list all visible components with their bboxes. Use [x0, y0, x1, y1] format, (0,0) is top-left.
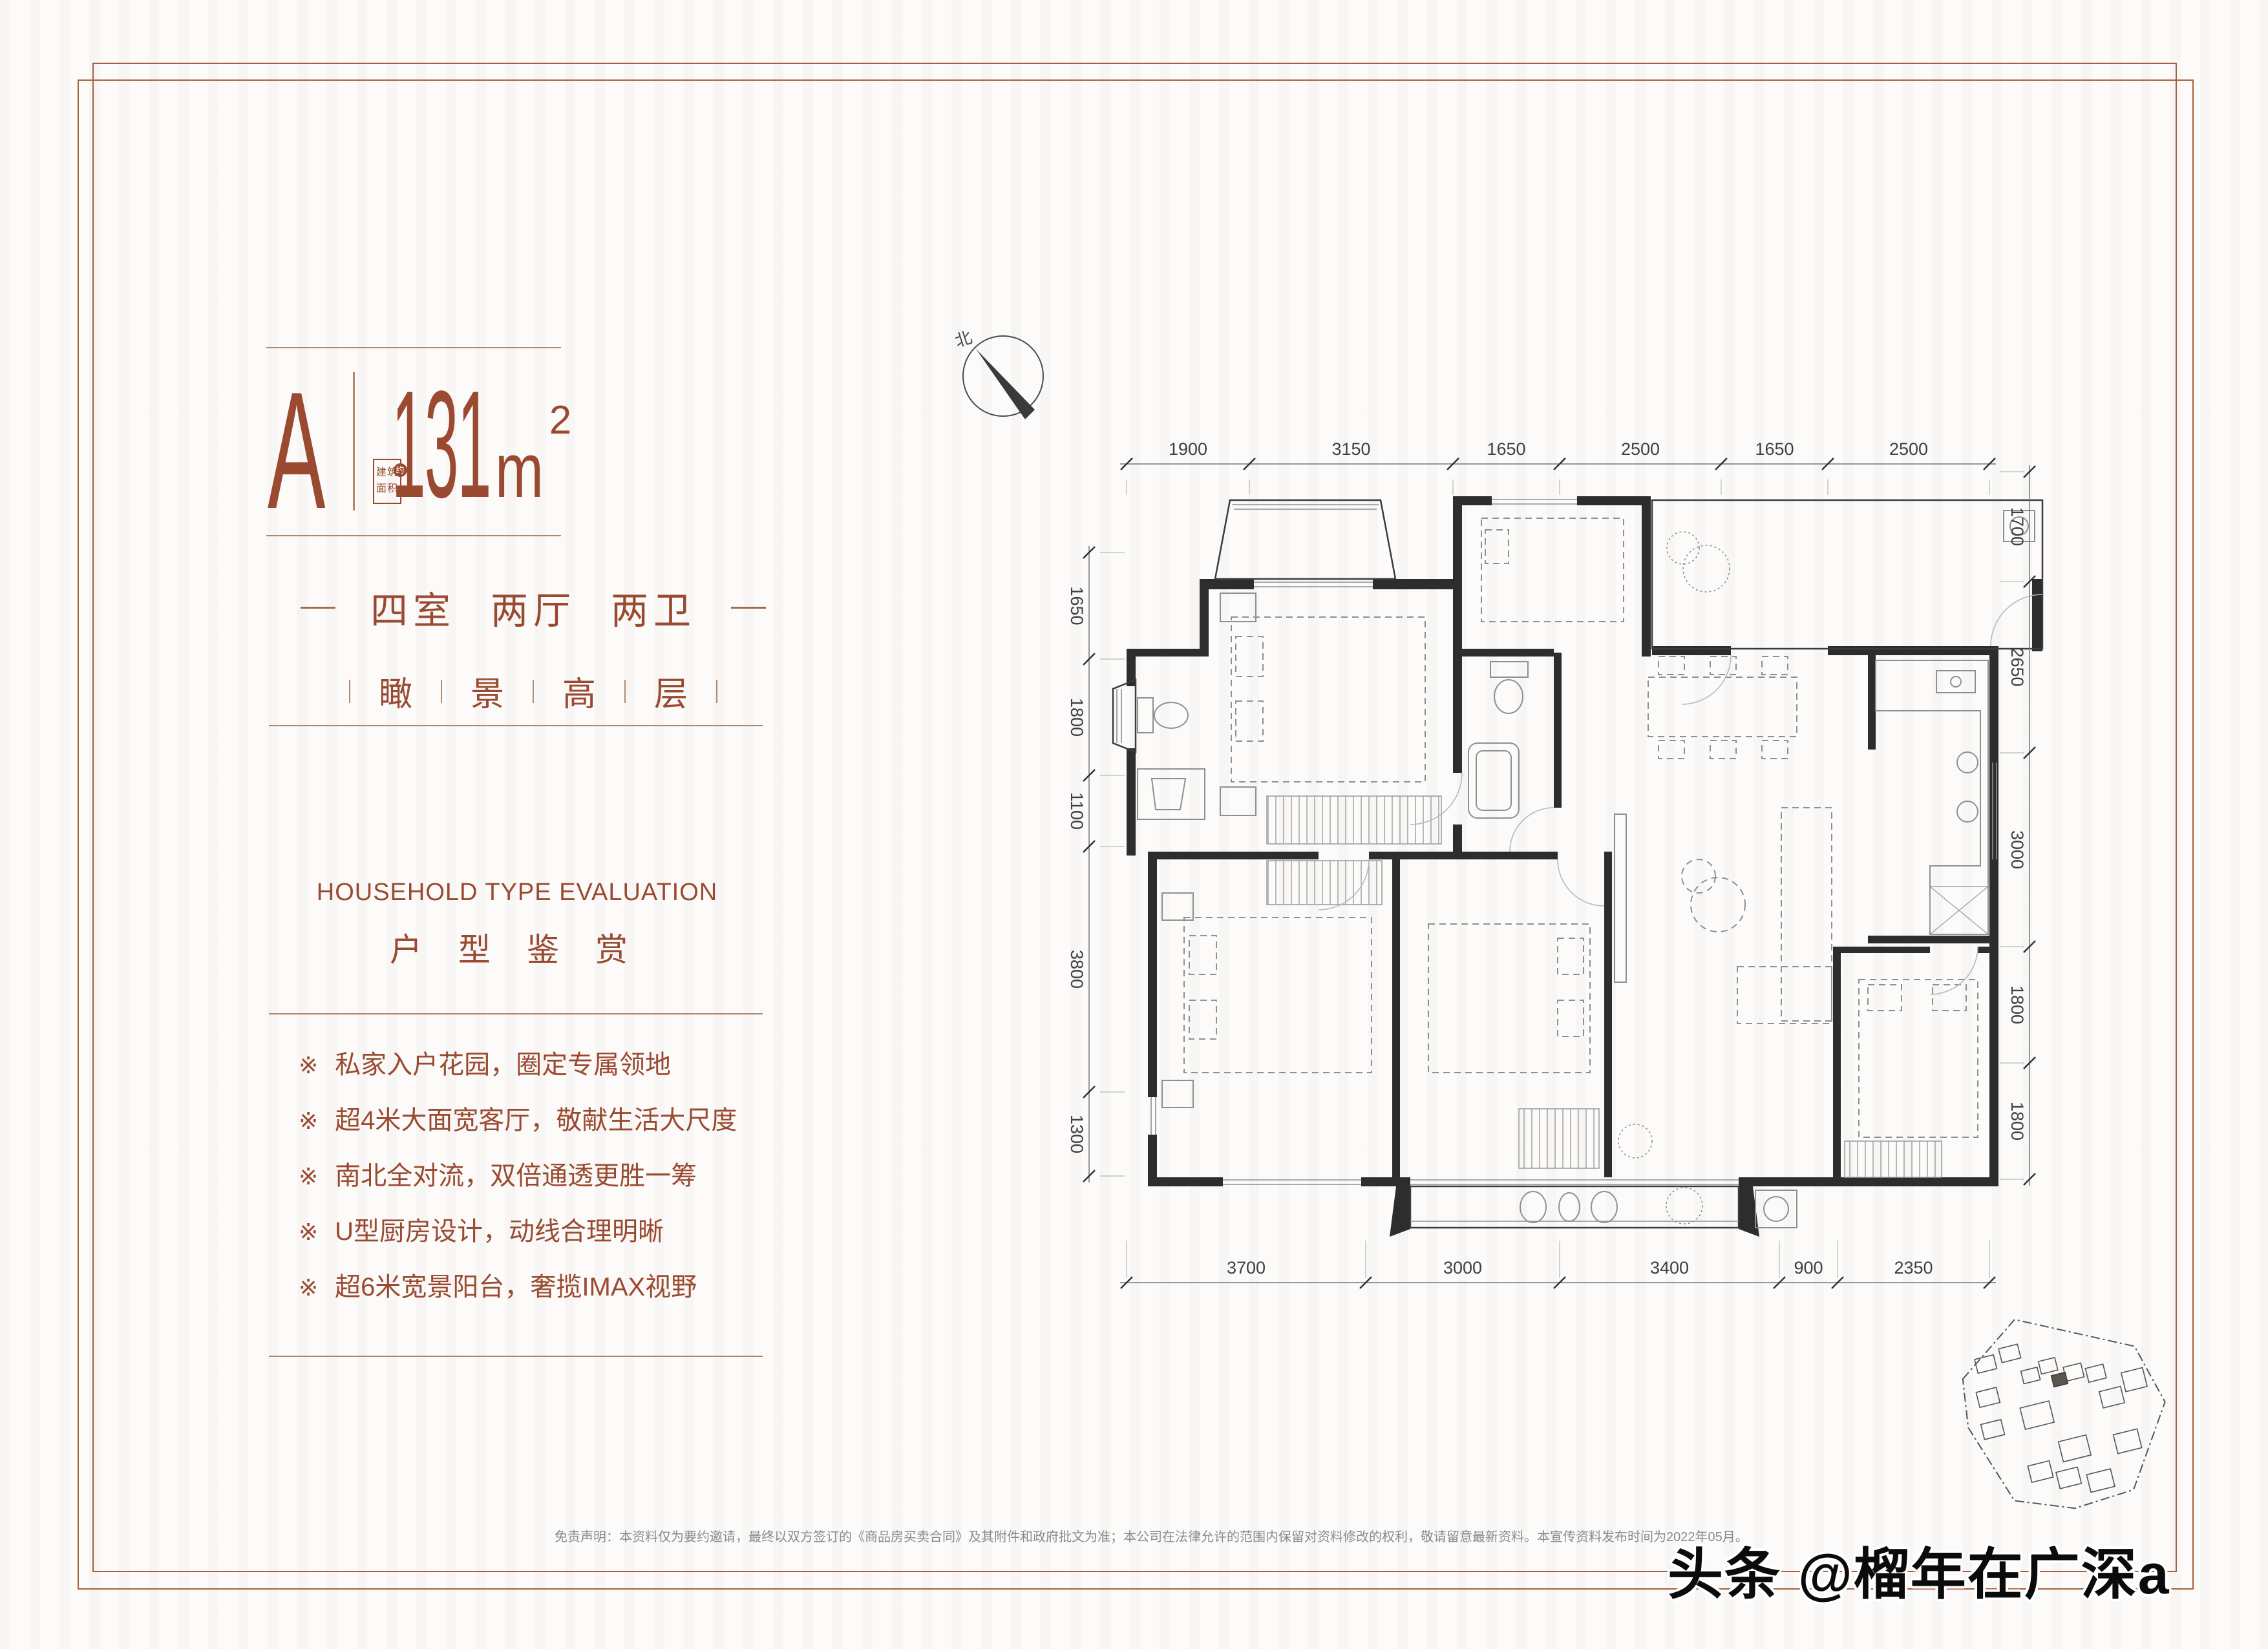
dash-right	[731, 607, 766, 609]
disclaimer-text: 免责声明：本资料仅为要约邀请，最终以双方签订的《商品房买卖合同》及其附件和政府批…	[555, 1526, 1748, 1545]
unit-letter: A	[268, 367, 325, 534]
hairline-under-features	[269, 725, 763, 726]
bullet-text: 南北全对流，双倍通透更胜一筹	[335, 1163, 697, 1189]
hairline-bottom	[269, 1356, 763, 1357]
dimension-label: 1900	[1169, 439, 1207, 459]
feature-separator	[716, 680, 717, 703]
bullet-marker: ※	[299, 1274, 318, 1300]
bullet-marker: ※	[299, 1163, 318, 1189]
dimension-chain-left: 16501800110038001300	[1067, 546, 1125, 1182]
feature-char: 高	[562, 667, 596, 715]
site-boundary	[1953, 1291, 2173, 1524]
dimension-label: 3150	[1331, 439, 1370, 459]
floor-plan: 北	[892, 304, 2146, 1325]
hairline-under-badge	[266, 535, 561, 536]
rooms-headline: 四室 两厅 两卫	[294, 580, 772, 635]
feature-char: 层	[654, 667, 688, 715]
feature-separator	[441, 680, 442, 703]
bullet-marker: ※	[299, 1052, 318, 1078]
dimension-label: 1650	[1067, 586, 1086, 625]
dimension-label: 3800	[1067, 950, 1086, 989]
dash-left	[301, 607, 335, 609]
dimension-label: 1300	[1067, 1115, 1086, 1153]
dimension-label: 1650	[1487, 439, 1525, 459]
feature-bullet-list: ※私家入户花园，圈定专属领地 ※超4米大面宽客厅，敬献生活大尺度 ※南北全对流，…	[299, 1052, 790, 1330]
feature-char: 瞰	[379, 667, 412, 715]
dining-furniture	[1648, 656, 1797, 759]
bullet-item: ※U型厨房设计，动线合理明晰	[299, 1219, 790, 1245]
plan-windows	[1117, 499, 1997, 1184]
dimension-label: 2500	[1621, 439, 1660, 459]
bullet-text: U型厨房设计，动线合理明晰	[335, 1219, 664, 1245]
rooms-item: 四室	[370, 580, 456, 635]
bullet-item: ※南北全对流，双倍通透更胜一筹	[299, 1163, 790, 1189]
rooms-item: 两厅	[491, 580, 576, 635]
watermark-text: 头条 @榴年在广深a	[1668, 1529, 2170, 1610]
area-value: 131	[392, 383, 491, 508]
site-buildings	[1964, 1316, 2169, 1514]
area-unit: m	[495, 436, 544, 505]
unit-divider	[353, 372, 355, 510]
bathroom-middle-fixtures	[1468, 662, 1528, 818]
dimension-label: 1800	[2008, 985, 2027, 1024]
entry-garden	[1667, 510, 2042, 646]
compass-icon: 北	[953, 327, 1043, 419]
bedroom-b-furniture	[1481, 518, 1624, 622]
bedroom-e-furniture	[1845, 980, 1978, 1177]
poster-page: { "accent_color": "#9a4a30", "frame_colo…	[0, 0, 2268, 1649]
bullet-text: 私家入户花园，圈定专属领地	[335, 1052, 671, 1078]
rooms-item: 两卫	[611, 580, 696, 635]
features-headline: 瞰 景 高 层	[294, 667, 772, 715]
bedroom-a-furniture	[1220, 593, 1441, 844]
dimension-chain-bottom: 3700300034009002350	[1120, 1241, 1996, 1288]
area-exponent: 2	[549, 397, 571, 443]
dimension-label: 3400	[1650, 1258, 1689, 1277]
dimension-label: 1650	[1755, 439, 1794, 459]
compass-north-label: 北	[953, 327, 975, 351]
bedroom-c-furniture	[1162, 861, 1382, 1108]
dimension-label: 2500	[1889, 439, 1928, 459]
hairline-under-title	[269, 1013, 763, 1014]
dimension-label: 3000	[1443, 1258, 1482, 1277]
dimension-label: 1800	[2008, 1102, 2027, 1140]
section-title-cn: 户型鉴赏	[271, 924, 763, 971]
bullet-item: ※超4米大面宽客厅，敬献生活大尺度	[299, 1108, 790, 1133]
bathroom-left-fixtures	[1138, 698, 1205, 819]
dimension-label: 2350	[1894, 1258, 1933, 1277]
dimension-label: 3700	[1227, 1258, 1266, 1277]
site-map	[1953, 1291, 2173, 1524]
feature-separator	[624, 680, 626, 703]
dimension-label: 2650	[2008, 647, 2027, 686]
living-room-furniture	[1615, 808, 1832, 1158]
bedroom-d-furniture	[1428, 924, 1599, 1168]
site-highlight-unit	[2051, 1372, 2068, 1387]
dimension-chain-right: 17002650300018001800	[2000, 465, 2035, 1186]
section-title-en: HOUSEHOLD TYPE EVALUATION	[271, 879, 763, 907]
bullet-text: 超4米大面宽客厅，敬献生活大尺度	[335, 1108, 737, 1133]
dimension-label: 1700	[2008, 507, 2027, 546]
feature-separator	[349, 680, 350, 703]
bullet-text: 超6米宽景阳台，奢揽IMAX视野	[335, 1274, 697, 1300]
dimension-label: 3000	[2008, 830, 2027, 869]
kitchen-fixtures	[1876, 660, 1988, 934]
bullet-marker: ※	[299, 1108, 318, 1133]
dimension-label: 1800	[1067, 698, 1086, 737]
dimension-label: 1100	[1067, 792, 1086, 830]
feature-separator	[533, 680, 534, 703]
bullet-marker: ※	[299, 1219, 318, 1245]
dimension-chain-top: 190031501650250016502500	[1120, 439, 1996, 495]
area-group: 131 m 2	[392, 383, 567, 508]
bullet-item: ※超6米宽景阳台，奢揽IMAX视野	[299, 1274, 790, 1300]
hairline-top	[266, 347, 561, 348]
feature-char: 景	[471, 667, 504, 715]
bullet-item: ※私家入户花园，圈定专属领地	[299, 1052, 790, 1078]
dimension-label: 900	[1794, 1258, 1823, 1277]
